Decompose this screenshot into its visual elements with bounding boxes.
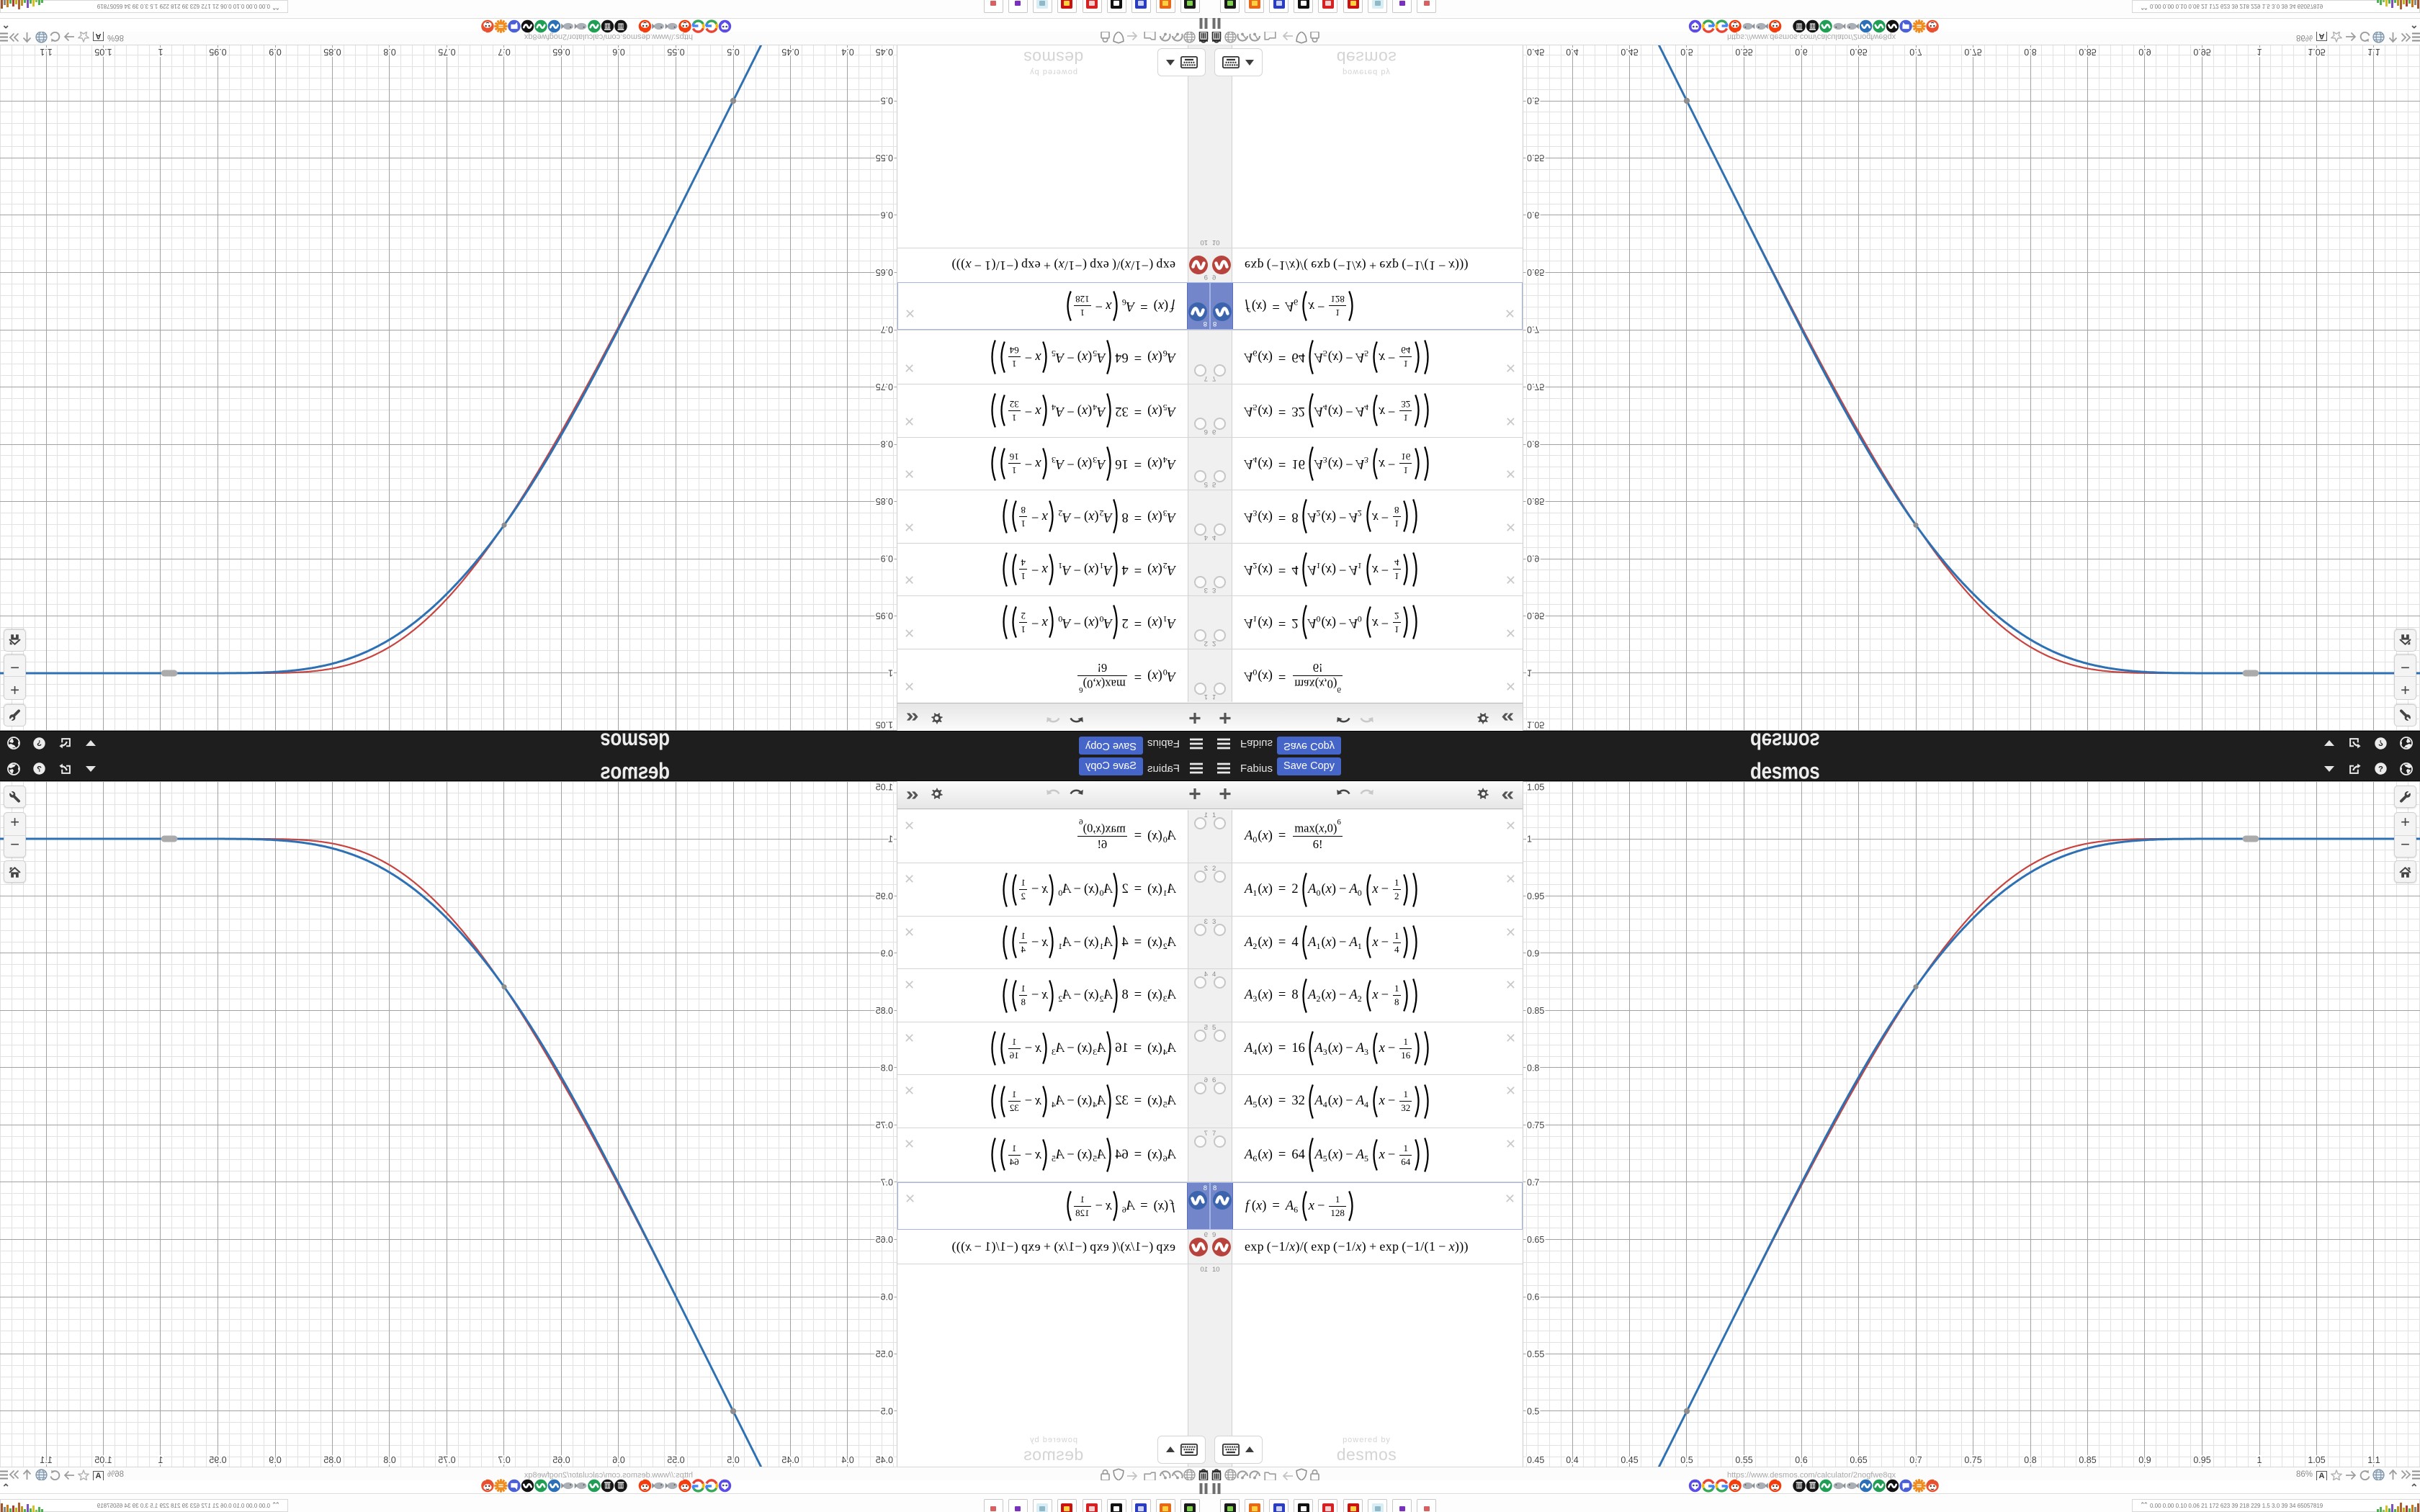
svg-text:1: 1	[2257, 1455, 2262, 1465]
svg-text:0.8: 0.8	[383, 1455, 395, 1465]
svg-text:0.95: 0.95	[876, 891, 893, 901]
svg-text:0.45: 0.45	[876, 47, 893, 57]
svg-text:0.8: 0.8	[881, 439, 893, 449]
svg-text:1: 1	[2257, 47, 2262, 57]
svg-text:0.55: 0.55	[1527, 153, 1544, 163]
svg-text:0.75: 0.75	[876, 1120, 893, 1130]
svg-text:0.85: 0.85	[1527, 1006, 1544, 1016]
svg-text:1.1: 1.1	[2367, 47, 2380, 57]
svg-text:0.45: 0.45	[781, 47, 799, 57]
svg-text:0.55: 0.55	[1735, 1455, 1752, 1465]
svg-text:1.05: 1.05	[94, 47, 112, 57]
svg-text:0.7: 0.7	[498, 47, 510, 57]
svg-text:0.45: 0.45	[781, 1455, 799, 1465]
svg-text:0.6: 0.6	[612, 47, 624, 57]
svg-text:0.85: 0.85	[876, 496, 893, 506]
svg-text:0.5: 0.5	[881, 1407, 893, 1417]
svg-text:0.55: 0.55	[667, 47, 684, 57]
svg-text:0.6: 0.6	[1527, 1292, 1539, 1302]
svg-text:0.85: 0.85	[2079, 47, 2096, 57]
svg-text:0.85: 0.85	[323, 47, 341, 57]
svg-text:0.45: 0.45	[1527, 1455, 1544, 1465]
svg-text:0.6: 0.6	[881, 1292, 893, 1302]
svg-text:0.45: 0.45	[1527, 47, 1544, 57]
svg-text:1: 1	[888, 668, 893, 678]
svg-text:0.9: 0.9	[269, 1455, 281, 1465]
svg-text:0.6: 0.6	[1795, 1455, 1807, 1465]
svg-text:0.7: 0.7	[1909, 47, 1922, 57]
svg-text:1.1: 1.1	[40, 1455, 52, 1465]
svg-text:0.65: 0.65	[876, 1235, 893, 1245]
svg-text:0.65: 0.65	[1850, 47, 1867, 57]
svg-text:0.7: 0.7	[1909, 1455, 1922, 1465]
svg-text:0.6: 0.6	[1795, 47, 1807, 57]
svg-text:0.65: 0.65	[1850, 1455, 1867, 1465]
svg-text:1.1: 1.1	[40, 47, 52, 57]
svg-text:0.7: 0.7	[498, 1455, 510, 1465]
svg-text:0.5: 0.5	[727, 47, 739, 57]
svg-text:0.9: 0.9	[2138, 47, 2151, 57]
svg-text:0.95: 0.95	[1527, 611, 1544, 621]
svg-text:0.4: 0.4	[841, 47, 853, 57]
svg-text:0.45: 0.45	[1621, 47, 1638, 57]
svg-text:0.95: 0.95	[209, 1455, 226, 1465]
svg-text:0.4: 0.4	[1566, 1455, 1578, 1465]
svg-text:0.7: 0.7	[881, 325, 893, 335]
svg-text:0.75: 0.75	[438, 47, 455, 57]
svg-text:0.9: 0.9	[1527, 949, 1539, 959]
svg-text:0.45: 0.45	[876, 1455, 893, 1465]
svg-text:0.6: 0.6	[1527, 210, 1539, 220]
svg-text:0.7: 0.7	[1527, 325, 1539, 335]
svg-text:0.85: 0.85	[323, 1455, 341, 1465]
svg-text:0.5: 0.5	[727, 1455, 739, 1465]
svg-text:0.65: 0.65	[1527, 267, 1544, 277]
svg-text:?: ?	[37, 765, 42, 774]
svg-text:0.9: 0.9	[881, 554, 893, 564]
svg-text:1: 1	[158, 1455, 163, 1465]
svg-text:0.65: 0.65	[552, 47, 570, 57]
svg-text:0.9: 0.9	[881, 949, 893, 959]
svg-text:0.65: 0.65	[552, 1455, 570, 1465]
svg-text:0.55: 0.55	[876, 153, 893, 163]
svg-text:0.5: 0.5	[1527, 96, 1539, 106]
svg-text:1.05: 1.05	[94, 1455, 112, 1465]
svg-text:1.05: 1.05	[876, 783, 893, 793]
svg-text:0.65: 0.65	[1527, 1235, 1544, 1245]
svg-text:1.05: 1.05	[1527, 720, 1544, 730]
svg-text:0.95: 0.95	[209, 47, 226, 57]
svg-text:1.1: 1.1	[2367, 1455, 2380, 1465]
svg-text:0.75: 0.75	[876, 382, 893, 392]
svg-text:0.5: 0.5	[1527, 1407, 1539, 1417]
svg-text:0.9: 0.9	[2138, 1455, 2151, 1465]
svg-text:1.05: 1.05	[2308, 47, 2325, 57]
svg-text:0.8: 0.8	[881, 1063, 893, 1074]
svg-text:?: ?	[2378, 765, 2383, 774]
svg-text:1: 1	[158, 47, 163, 57]
svg-text:0.75: 0.75	[438, 1455, 455, 1465]
svg-text:0.7: 0.7	[881, 1178, 893, 1188]
svg-text:0.85: 0.85	[876, 1006, 893, 1016]
svg-text:1: 1	[1527, 668, 1532, 678]
svg-text:0.95: 0.95	[876, 611, 893, 621]
svg-text:0.5: 0.5	[1680, 47, 1693, 57]
svg-text:1.05: 1.05	[876, 720, 893, 730]
svg-text:0.6: 0.6	[612, 1455, 624, 1465]
svg-text:1.05: 1.05	[2308, 1455, 2325, 1465]
svg-text:0.8: 0.8	[383, 47, 395, 57]
svg-text:0.55: 0.55	[1735, 47, 1752, 57]
svg-text:0.55: 0.55	[1527, 1349, 1544, 1359]
svg-text:0.65: 0.65	[876, 267, 893, 277]
svg-text:0.8: 0.8	[1527, 439, 1539, 449]
svg-text:0.9: 0.9	[269, 47, 281, 57]
svg-text:1.05: 1.05	[1527, 783, 1544, 793]
svg-text:?: ?	[37, 738, 42, 747]
svg-text:1: 1	[1527, 834, 1532, 845]
svg-text:0.95: 0.95	[2193, 1455, 2210, 1465]
svg-text:0.75: 0.75	[1964, 47, 1981, 57]
svg-text:0.75: 0.75	[1527, 382, 1544, 392]
svg-text:0.45: 0.45	[1621, 1455, 1638, 1465]
svg-text:0.55: 0.55	[876, 1349, 893, 1359]
svg-text:0.55: 0.55	[667, 1455, 684, 1465]
svg-text:0.5: 0.5	[1680, 1455, 1693, 1465]
svg-text:0.85: 0.85	[2079, 1455, 2096, 1465]
svg-text:0.4: 0.4	[841, 1455, 853, 1465]
svg-text:0.8: 0.8	[2024, 47, 2036, 57]
svg-text:0.95: 0.95	[1527, 891, 1544, 901]
svg-text:0.85: 0.85	[1527, 496, 1544, 506]
svg-text:0.5: 0.5	[881, 96, 893, 106]
svg-text:0.7: 0.7	[1527, 1178, 1539, 1188]
svg-text:0.75: 0.75	[1964, 1455, 1981, 1465]
svg-text:?: ?	[2378, 738, 2383, 747]
svg-text:0.9: 0.9	[1527, 554, 1539, 564]
svg-text:0.75: 0.75	[1527, 1120, 1544, 1130]
svg-text:0.8: 0.8	[2024, 1455, 2036, 1465]
svg-text:0.8: 0.8	[1527, 1063, 1539, 1074]
svg-text:0.4: 0.4	[1566, 47, 1578, 57]
svg-text:1: 1	[888, 834, 893, 845]
svg-text:0.95: 0.95	[2193, 47, 2210, 57]
svg-text:0.6: 0.6	[881, 210, 893, 220]
